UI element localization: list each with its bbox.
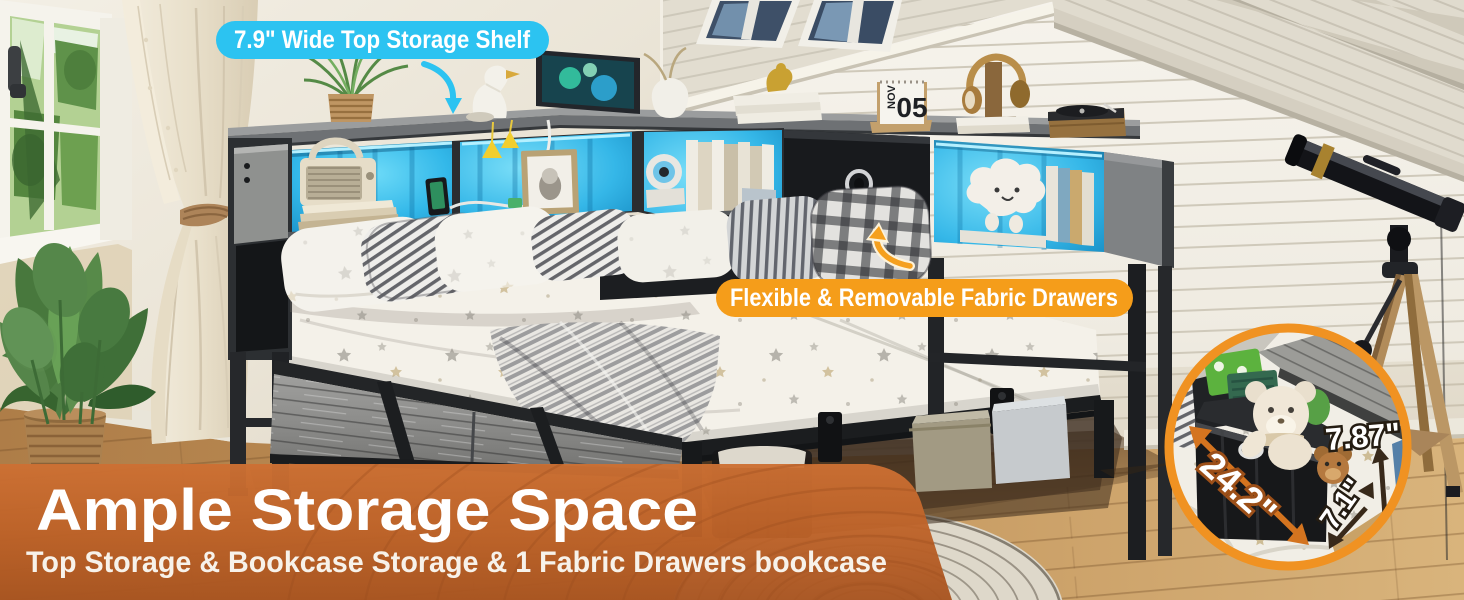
svg-text:Flexible & Removable Fabric Dr: Flexible & Removable Fabric Drawers: [730, 284, 1118, 312]
svg-text:7.9" Wide Top Storage Shelf: 7.9" Wide Top Storage Shelf: [234, 26, 531, 54]
svg-text:7.87": 7.87": [1324, 416, 1402, 457]
svg-text:Top Storage & Bookcase Storage: Top Storage & Bookcase Storage & 1 Fabri…: [26, 546, 887, 579]
svg-text:Ample Storage Space: Ample Storage Space: [36, 478, 698, 543]
svg-text:05: 05: [896, 92, 927, 123]
